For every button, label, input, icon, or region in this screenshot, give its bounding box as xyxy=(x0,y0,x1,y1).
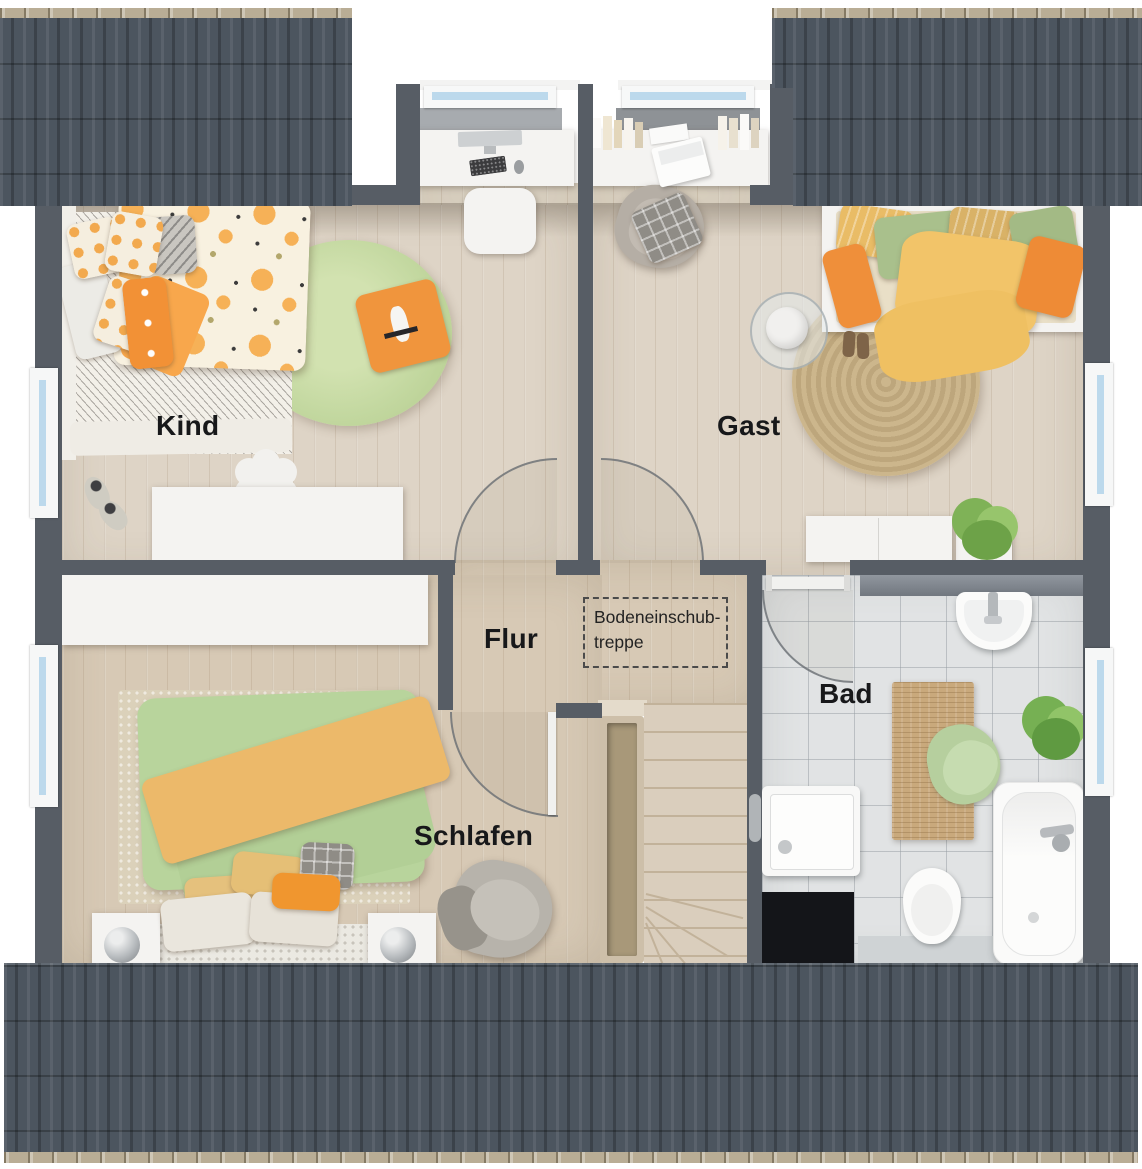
kind-pillow-2 xyxy=(103,210,165,278)
book-4 xyxy=(624,118,633,150)
room-label-schlafen: Schlafen xyxy=(414,820,533,852)
gast-sideboard xyxy=(806,516,952,562)
dormer-left-inner-sill xyxy=(418,108,562,130)
room-label-flur: Flur xyxy=(484,623,538,655)
shower-drain xyxy=(778,840,792,854)
window-gast-right-glass xyxy=(1097,375,1104,494)
bathtub-faucet-head xyxy=(1052,834,1070,852)
gast-slipper-2 xyxy=(857,333,870,359)
monitor-kind-desk xyxy=(458,130,522,147)
stair-banister-well xyxy=(607,723,637,956)
room-label-gast: Gast xyxy=(717,410,780,442)
door-leaf-schlafen xyxy=(548,712,556,815)
room-label-kind: Kind xyxy=(156,410,219,442)
bad-floor-niche xyxy=(762,892,854,963)
wall-bad-left xyxy=(747,575,762,963)
schlafen-pillow-orange xyxy=(271,872,341,912)
bad-door-hinge-cap-2 xyxy=(844,575,850,591)
dormer-right-window-glass xyxy=(630,92,746,100)
book-8 xyxy=(740,114,749,150)
kind-pillow-buttons xyxy=(121,276,174,370)
wall-stair-stub xyxy=(556,703,602,718)
attic-hatch-outline: Bodeneinschub- treppe xyxy=(583,597,728,668)
wall-center-kind-gast xyxy=(578,84,593,560)
window-kind-left-glass xyxy=(39,380,46,506)
lamp-right xyxy=(380,927,416,963)
roof-top-right-gutter xyxy=(772,8,1142,18)
gast-table-lamp xyxy=(766,307,808,349)
schlafen-pillow-white-1 xyxy=(160,891,257,952)
bathtub-basin xyxy=(1002,792,1076,956)
desk-chair-kind xyxy=(464,188,536,254)
bad-door-hinge-cap-1 xyxy=(766,575,772,591)
roof-top-right xyxy=(793,8,1142,206)
book-5 xyxy=(635,122,643,148)
wall-gast-flur xyxy=(700,560,766,575)
roof-bottom-gutter xyxy=(4,1152,1138,1163)
bathtub-drain xyxy=(1028,912,1039,923)
gast-slipper-1 xyxy=(842,331,856,358)
window-bad-right-glass xyxy=(1097,660,1104,784)
book-1 xyxy=(592,118,601,148)
book-2 xyxy=(603,116,612,150)
attic-hatch-label-line1: Bodeneinschub- xyxy=(594,605,726,630)
gast-plant-leaves-3 xyxy=(962,520,1012,560)
attic-hatch-label-line2: treppe xyxy=(594,630,726,655)
schlafen-wardrobe xyxy=(62,575,428,645)
toilet-seat xyxy=(911,884,953,936)
wall-roof-gap-left xyxy=(350,185,396,205)
room-label-bad: Bad xyxy=(819,678,873,710)
sink-faucet-head xyxy=(984,616,1002,624)
dormer-left-window-glass xyxy=(432,92,548,100)
mouse xyxy=(514,160,524,174)
floor-plan: Kind Gast Flur Schlafen Bad Bodeneinschu… xyxy=(0,0,1142,1169)
shower-tray-inner xyxy=(770,794,854,870)
roof-top-right-patch xyxy=(772,8,793,88)
bad-door-leaf xyxy=(766,577,850,589)
staircase-treads xyxy=(644,703,747,963)
kind-sideboard xyxy=(152,487,403,562)
wall-gast-bad xyxy=(850,560,1083,575)
monitor-stand xyxy=(484,146,496,154)
wall-roof-gap-right xyxy=(750,185,794,205)
book-9 xyxy=(751,118,759,148)
book-3 xyxy=(614,120,622,148)
shower-head xyxy=(749,794,761,842)
wall-exterior-left xyxy=(35,203,62,963)
wall-kind-schlafen xyxy=(35,560,455,575)
book-6 xyxy=(718,116,727,150)
stair-landing xyxy=(598,700,647,716)
roof-top-left xyxy=(0,8,352,206)
book-7 xyxy=(729,118,738,148)
lamp-left xyxy=(104,927,140,963)
wall-exterior-right xyxy=(1083,203,1110,963)
wall-flur-left xyxy=(438,575,453,710)
wall-dormer-left xyxy=(396,84,420,205)
bad-plant-3 xyxy=(1032,718,1080,760)
roof-top-left-gutter xyxy=(0,8,352,18)
gast-sideboard-divider xyxy=(878,518,879,560)
window-schlafen-left-glass xyxy=(39,657,46,795)
roof-bottom xyxy=(4,963,1138,1157)
wall-door-stub xyxy=(556,560,600,575)
